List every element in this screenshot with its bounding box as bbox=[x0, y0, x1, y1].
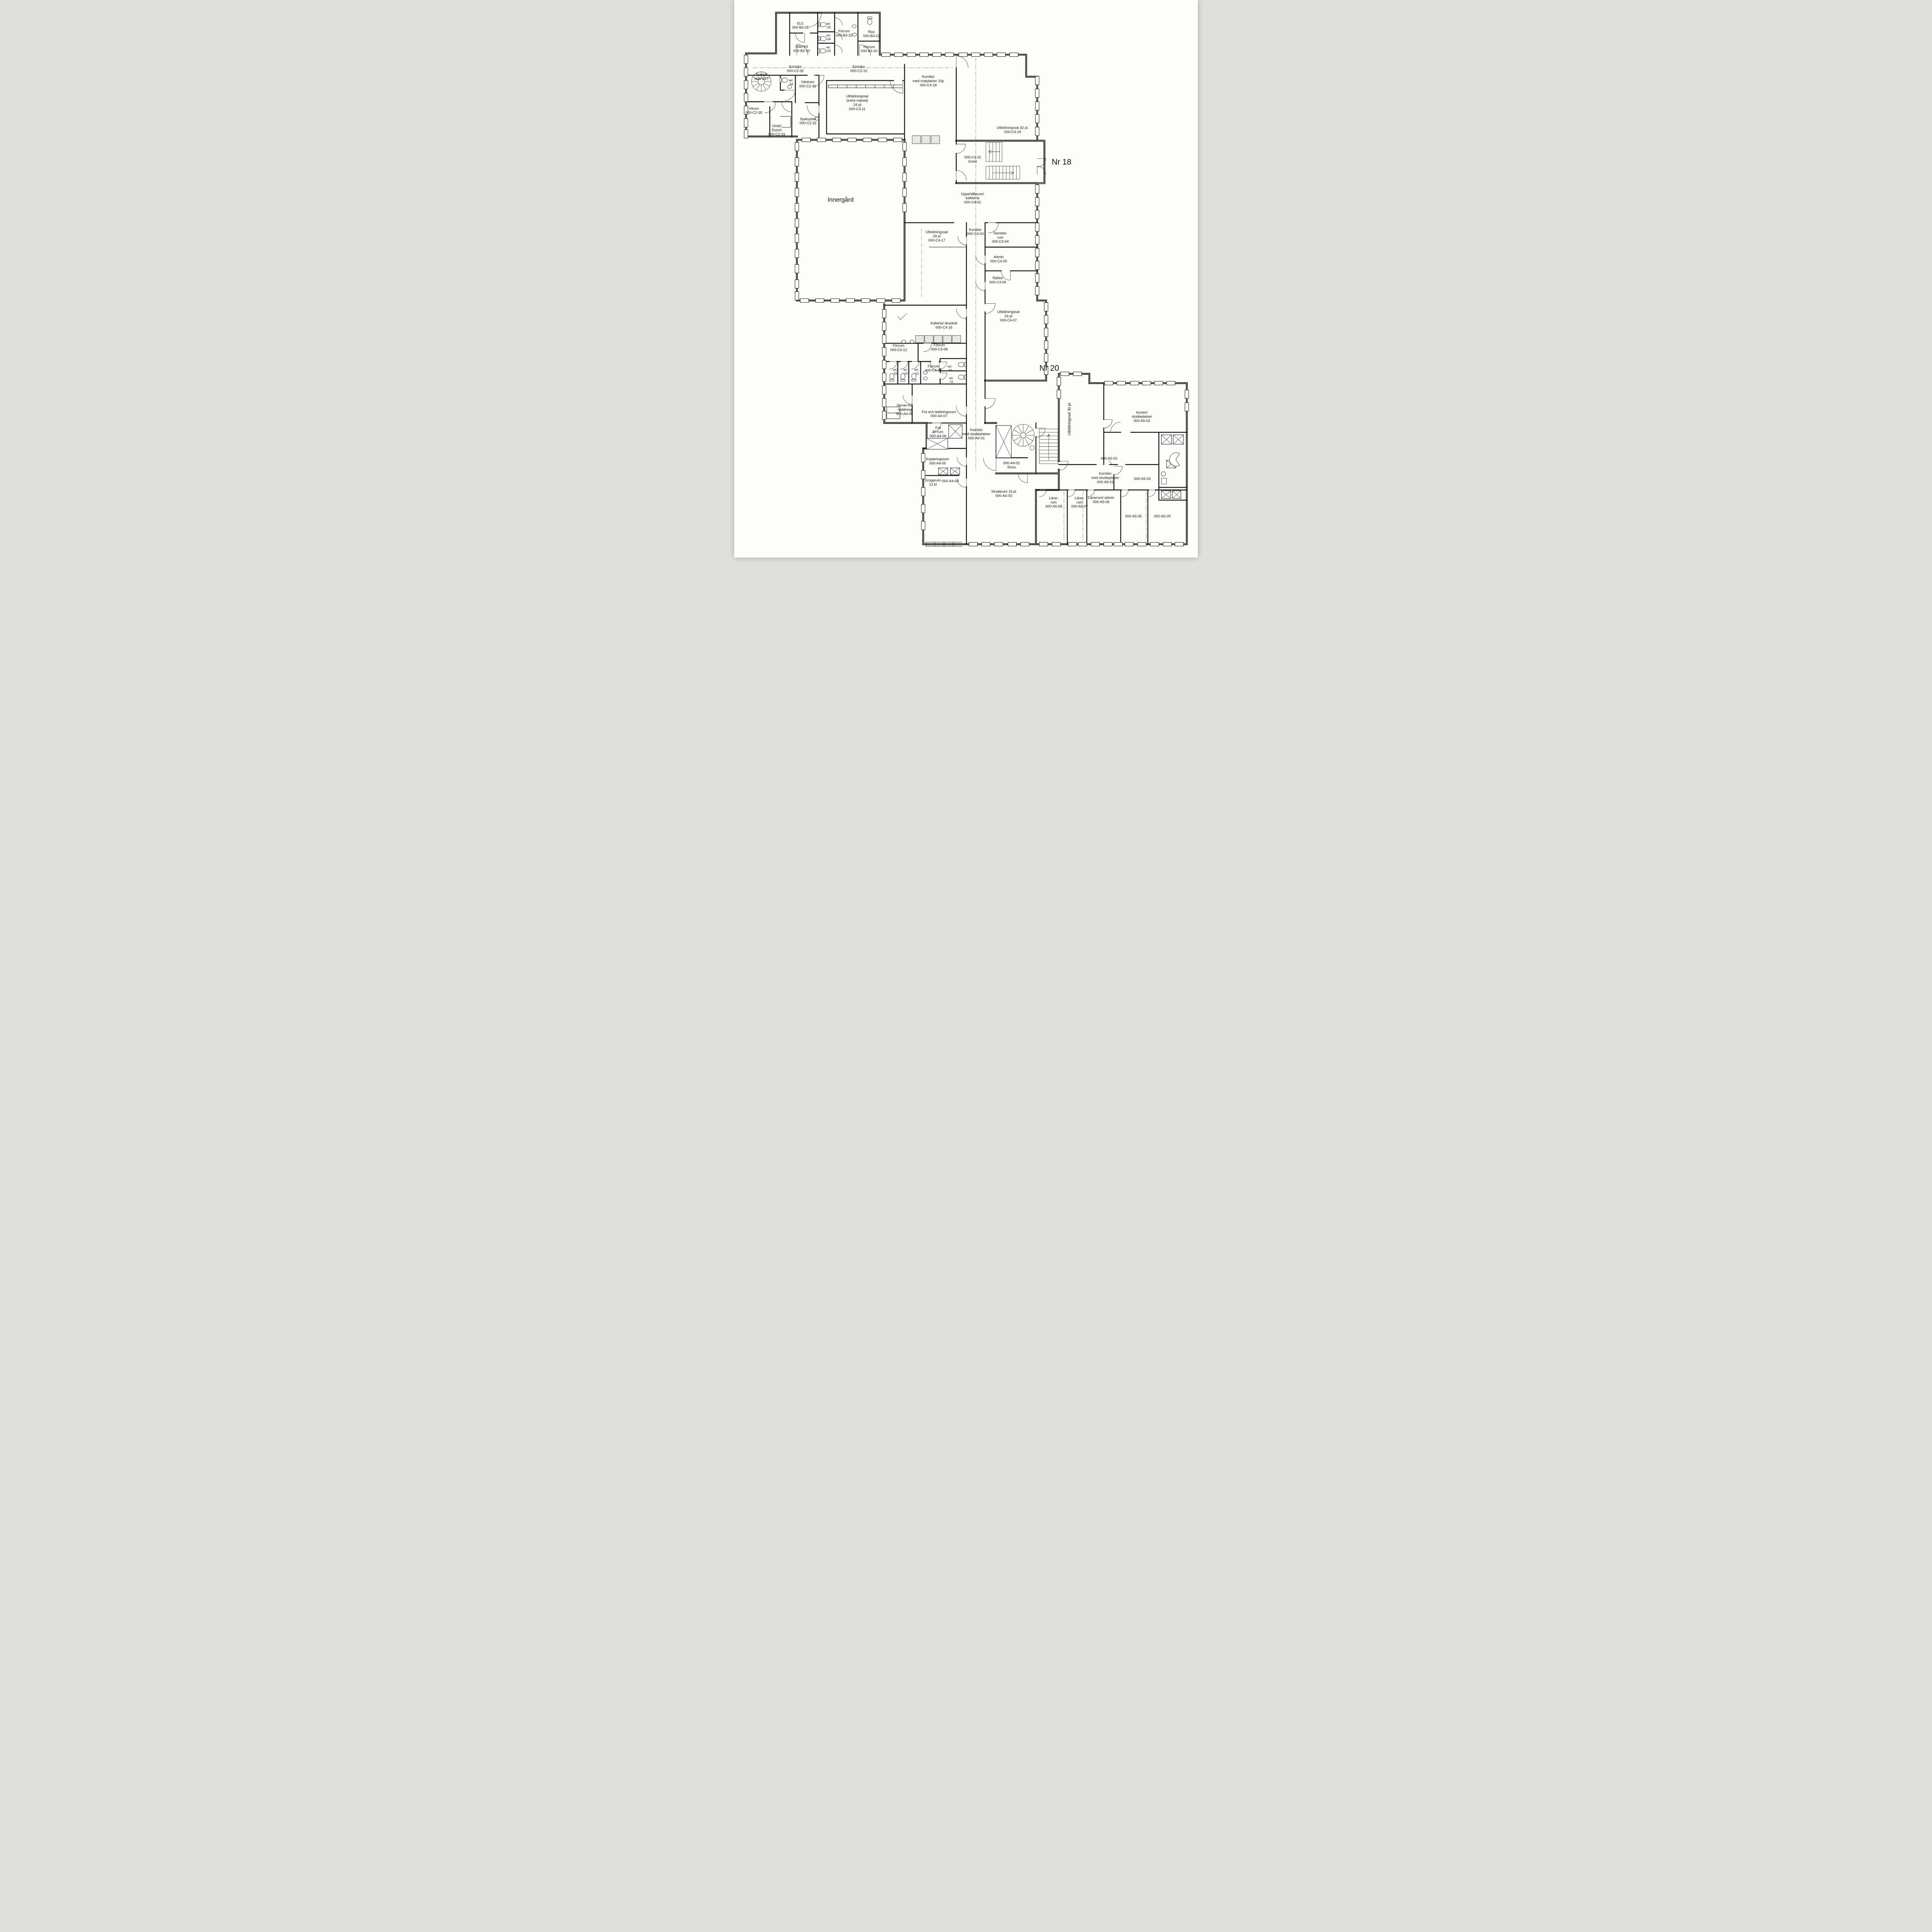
plumbing-fixtures bbox=[780, 17, 1180, 484]
window-marker bbox=[1125, 543, 1133, 546]
partition-walls bbox=[781, 85, 1112, 546]
window-marker bbox=[882, 322, 886, 331]
door-swing bbox=[782, 102, 792, 112]
sink-icon bbox=[901, 340, 906, 343]
room-label-sluss-a4-02-line-1: Sluss bbox=[1007, 465, 1016, 469]
room-label-rwc-b3-21-line-0: Rwc bbox=[868, 30, 875, 34]
door-swing bbox=[976, 281, 985, 291]
room-label-forrum-c4-08-line-1: 000-C4-08 bbox=[931, 347, 948, 351]
room-label-server-frd-a4-08-line-0: Server-frd bbox=[896, 403, 912, 407]
window-marker bbox=[882, 373, 886, 381]
toilet-icon bbox=[818, 36, 826, 41]
room-label-wc-24-line-0: wc bbox=[826, 33, 830, 37]
room-label-wc-23-line-0: wc bbox=[826, 45, 830, 49]
room-label-rektor-c4-06-line-1: 000-C4-06 bbox=[990, 280, 1006, 284]
window-marker bbox=[945, 53, 954, 57]
window-marker bbox=[903, 188, 906, 197]
toilet-icon bbox=[958, 375, 966, 379]
window-marker bbox=[1078, 543, 1087, 546]
toilet-icon bbox=[867, 17, 872, 25]
window-marker bbox=[795, 219, 799, 227]
room-label-korridor-c4-18-line-1: med matplatser 10p bbox=[913, 79, 944, 83]
room-label-forrum-c4-12-line-0: Förrum bbox=[893, 344, 905, 348]
room-label-forrum-b3-20-line-1: 000-B3-20 bbox=[861, 49, 878, 53]
room-label-vantrum-c2-31-line-1: 000-C2-31 bbox=[799, 84, 816, 88]
door-swing bbox=[956, 144, 966, 153]
room-label-kontor-a5-03-line-2: 000-A5-03 bbox=[1134, 419, 1150, 423]
room-label-utbildningssal-c4-07-line-2: 000-C4-07 bbox=[1000, 318, 1017, 322]
room-label-vilrum-c2-35-line-1: 000-C2-35 bbox=[745, 111, 762, 115]
window-marker bbox=[878, 138, 887, 142]
window-marker bbox=[882, 335, 886, 344]
spiral-stair-sluss-step bbox=[1026, 437, 1033, 441]
serving-counter bbox=[931, 136, 940, 144]
room-label-korridor-c3-10-line-1: 000-C3-10 bbox=[850, 69, 867, 73]
window-marker bbox=[795, 249, 799, 258]
room-label-wc-13-line-0: wc bbox=[914, 368, 918, 372]
room-label-lararrum-admin-a5-06-line-1: 000-A5-06 bbox=[1093, 500, 1109, 504]
spiral-stair-trappa-step bbox=[764, 83, 770, 86]
room-label-kontor-a5-03-line-1: studieplatser bbox=[1132, 415, 1152, 418]
window-marker bbox=[1163, 543, 1172, 546]
room-label-wc-23-line-1: -23 bbox=[826, 49, 830, 53]
toilet-icon bbox=[818, 49, 826, 53]
window-marker bbox=[1091, 543, 1100, 546]
exterior-wall-texture bbox=[797, 140, 905, 301]
room-label-trappa-nod-ut-line-1: Nöd UT? bbox=[754, 77, 769, 81]
room-label-utbildningssal-c4-19-line-1: 000-C4-19 bbox=[1004, 130, 1021, 134]
room-label-korridor-a4-01-line-0: Korridor bbox=[970, 428, 983, 432]
room-label-kontor-a5-03-line-0: Kontor/ bbox=[1136, 410, 1148, 414]
sink-icon bbox=[923, 377, 927, 380]
door-swing bbox=[807, 105, 819, 117]
room-label-elc-line-1: 000-B2-21 bbox=[792, 26, 809, 29]
window-marker bbox=[795, 234, 799, 242]
room-label-wc-11-line-1: -11 bbox=[949, 380, 954, 384]
toilet-icon bbox=[780, 78, 787, 82]
room-label-innergard-line-0: Innergård bbox=[828, 196, 854, 203]
door-swing bbox=[835, 45, 842, 53]
door-swing bbox=[957, 457, 966, 466]
door-swing bbox=[956, 56, 968, 68]
room-label-utbildningssal-c4-17-line-0: Utbildningssal bbox=[926, 230, 948, 234]
window-marker bbox=[1114, 543, 1122, 546]
room-label-utbildningssal-c4-19-line-0: Utbildningssal 32 pl. bbox=[997, 126, 1028, 130]
door-swing bbox=[976, 255, 985, 264]
room-label-forrum-c4-09-line-1: 000-C4-09 bbox=[925, 369, 942, 372]
room-label-serverskap-line-0: Serverskåp bbox=[888, 412, 900, 414]
floorplan-svg: ELC000-B2-21Städ-frd000-B2-20wc-25wc-24w… bbox=[734, 0, 1198, 558]
window-marker bbox=[1104, 543, 1112, 546]
door-swing bbox=[956, 170, 966, 180]
room-label-larar-rum-a5-07-line-2: 000-A5-07 bbox=[1071, 505, 1088, 509]
window-marker bbox=[795, 188, 799, 197]
window-marker bbox=[882, 411, 886, 420]
room-label-admin-c4-05-line-0: Admin bbox=[993, 255, 1003, 259]
room-label-sjuksyster-c2-32-line-0: Sjuksyster bbox=[800, 117, 816, 121]
door-swing bbox=[1039, 490, 1046, 497]
room-label-wc-14-line-0: wc bbox=[903, 368, 907, 372]
window-marker bbox=[1117, 381, 1125, 385]
window-marker bbox=[1035, 197, 1039, 206]
room-label-wc-25-line-0: wc bbox=[826, 22, 830, 26]
spiral-stair-sluss-step bbox=[1014, 430, 1021, 434]
serving-counter bbox=[922, 136, 930, 144]
spiral-stair-sluss-step bbox=[1018, 426, 1022, 433]
room-label-omkl-dusch-c2-33-line-0: Omkl/ bbox=[772, 124, 781, 128]
door-swing bbox=[1114, 466, 1122, 475]
room-label-grupprum-12pl-line-1: 12 pl bbox=[929, 483, 937, 486]
room-label-entre-c4-01-line-1: Entré bbox=[969, 160, 977, 163]
window-marker bbox=[895, 53, 903, 57]
door-swing bbox=[983, 458, 996, 471]
room-label-sjuksyster-c2-32-line-1: 000-C2-32 bbox=[800, 121, 817, 125]
window-marker bbox=[921, 471, 925, 479]
window-marker bbox=[1035, 89, 1039, 97]
spiral-stair-sluss-step bbox=[1026, 430, 1033, 434]
room-label-korridor-c4-03-line-1: 000-C4-03 bbox=[967, 232, 984, 236]
door-swing bbox=[940, 373, 947, 380]
window-marker bbox=[893, 138, 902, 142]
window-marker bbox=[831, 299, 839, 303]
room-label-larar-rum-a5-08-line-2: 000-A5-08 bbox=[1046, 505, 1062, 509]
room-label-utbildningssal-c3-11-line-2: 24 pl bbox=[854, 103, 861, 107]
room-label-omkl-dusch-c2-33-line-2: 000-C2-33 bbox=[768, 133, 785, 136]
room-label-grupprum-12pl-line-0: Grupprum bbox=[925, 478, 941, 482]
window-marker bbox=[903, 143, 906, 151]
door-swing bbox=[1059, 461, 1068, 470]
room-label-stad-frd-line-1: 000-B2-20 bbox=[793, 49, 810, 53]
window-marker bbox=[1052, 543, 1061, 546]
door-swing bbox=[1018, 473, 1027, 483]
room-label-omkl-dusch-c2-33-line-1: Dusch bbox=[772, 128, 782, 132]
window-marker bbox=[1044, 341, 1048, 349]
room-label-vantrum-c2-31-line-0: Väntrum bbox=[801, 80, 815, 84]
room-label-korridor-c2-30-line-1: 000-C2-30 bbox=[787, 69, 804, 73]
window-marker bbox=[744, 93, 748, 102]
toilet-icon bbox=[818, 22, 826, 27]
room-label-korridor-c3-10-line-0: Korridor bbox=[852, 65, 865, 69]
window-marker bbox=[1020, 543, 1029, 546]
room-label-a4-04-line-0: 000-A4-04 bbox=[942, 479, 959, 483]
toilet-icon bbox=[958, 362, 966, 367]
door-swing bbox=[1068, 490, 1075, 497]
room-label-frd-laddningsrum-a4-07-line-1: 000-A4-07 bbox=[930, 414, 947, 418]
door-swing bbox=[985, 303, 995, 313]
door-swing bbox=[923, 343, 932, 352]
window-marker bbox=[832, 138, 841, 142]
window-marker bbox=[882, 53, 890, 57]
window-marker bbox=[1035, 286, 1039, 295]
window-marker bbox=[903, 173, 906, 182]
window-marker bbox=[1073, 372, 1082, 376]
room-label-korridor-c4-03-line-0: Korridor bbox=[969, 228, 982, 231]
spiral-stair-trappa-step bbox=[757, 84, 760, 90]
room-label-kafetria-c4-16-line-1: 000-C4-16 bbox=[935, 325, 952, 329]
room-label-rwc-b3-21-line-1: 000-B3-21 bbox=[863, 34, 880, 38]
room-label-larar-rum-a5-08-line-1: rum bbox=[1051, 500, 1057, 504]
room-label-a5-05-line-0: 000-A5-05 bbox=[1125, 514, 1142, 518]
room-label-rektor-c4-06-line-0: Rektor bbox=[993, 276, 1003, 280]
door-swing bbox=[795, 33, 804, 43]
door-swings bbox=[765, 13, 1155, 497]
room-label-elc-line-0: ELC bbox=[797, 21, 804, 25]
room-labels: ELC000-B2-21Städ-frd000-B2-20wc-25wc-24w… bbox=[745, 21, 1170, 518]
window-marker bbox=[795, 143, 799, 151]
room-label-wc-10-line-0: wc bbox=[947, 364, 952, 368]
room-label-larar-rum-a5-07-line-0: Lärar- bbox=[1075, 496, 1085, 500]
spiral-stair-sluss-step bbox=[1024, 426, 1029, 433]
window-marker bbox=[1057, 390, 1061, 398]
window-marker bbox=[921, 521, 925, 530]
spiral-stair-sluss-step bbox=[1024, 437, 1029, 445]
door-swing bbox=[958, 236, 966, 245]
window-marker bbox=[1035, 127, 1039, 136]
room-label-frd-el-rum-a4-06-line-2: 000-A4-06 bbox=[930, 434, 946, 438]
window-marker bbox=[1035, 210, 1039, 219]
room-label-forrum-c4-09-line-0: Förrum bbox=[928, 364, 939, 368]
sink-icon bbox=[910, 340, 914, 343]
serving-counter bbox=[912, 136, 921, 144]
kitchen-counter bbox=[934, 335, 942, 343]
room-label-a5-04-line-0: 000-A5-04 bbox=[1134, 477, 1151, 481]
room-label-wc-11-line-0: wc bbox=[949, 376, 953, 380]
window-marker bbox=[882, 398, 886, 407]
room-label-korridor-c4-18-line-2: 000-C4-18 bbox=[920, 83, 937, 87]
window-marker bbox=[846, 299, 855, 303]
kitchen-counter bbox=[952, 335, 961, 343]
kitchen-counter bbox=[915, 335, 924, 343]
window-marker bbox=[882, 386, 886, 394]
room-label-utbildningssal-c4-17-line-2: 000-C4-17 bbox=[929, 238, 946, 242]
room-label-korridor-c4-18-line-0: Korridor bbox=[922, 75, 935, 79]
room-label-admin-c4-05-line-1: 000-C4-05 bbox=[990, 259, 1007, 263]
window-marker bbox=[795, 173, 799, 182]
window-marker bbox=[892, 299, 900, 303]
window-marker bbox=[1057, 377, 1061, 386]
room-label-wc-13-line-1: -13 bbox=[914, 371, 919, 375]
window-marker bbox=[921, 454, 925, 462]
room-label-korridor-c2-30-line-0: Korridor bbox=[789, 65, 802, 69]
door-swing bbox=[835, 18, 842, 26]
window-marker bbox=[1039, 543, 1048, 546]
room-label-larar-rum-a5-08-line-0: Lärar- bbox=[1049, 496, 1059, 500]
room-label-sluss-a4-02-line-0: 000-A4-02 bbox=[1003, 461, 1020, 465]
window-marker bbox=[1185, 403, 1189, 411]
door-swing bbox=[985, 398, 995, 408]
room-label-larar-rum-a5-07-line-1: rum bbox=[1077, 500, 1083, 504]
room-label-wc-15-line-0: wc bbox=[893, 368, 897, 372]
room-label-a5-02-line-0: 000-A5-02 bbox=[1101, 456, 1117, 460]
window-marker bbox=[1035, 114, 1039, 123]
window-marker bbox=[959, 53, 967, 57]
window-marker bbox=[932, 53, 941, 57]
window-marker bbox=[903, 158, 906, 166]
kitchen-counter bbox=[925, 335, 933, 343]
room-label-lararrum-admin-a5-06-line-0: Lärarrum/ admin bbox=[1088, 496, 1114, 500]
window-marker bbox=[984, 53, 993, 57]
room-label-korridor-a4-01-line-2: 000-A4-01 bbox=[968, 436, 985, 440]
room-label-wc-10-line-1: -10 bbox=[947, 368, 952, 372]
room-label-kopieringsrum-a4-05-line-1: 000-A4-05 bbox=[929, 461, 946, 465]
window-marker bbox=[1138, 543, 1146, 546]
window-marker bbox=[817, 138, 826, 142]
fixture-box bbox=[1162, 478, 1167, 484]
sink-icon bbox=[852, 33, 857, 36]
window-marker bbox=[1010, 53, 1018, 57]
door-swing bbox=[956, 309, 966, 319]
window-marker bbox=[1061, 372, 1069, 376]
room-label-nr-20-line-0: Nr 20 bbox=[1039, 364, 1059, 372]
window-marker bbox=[795, 204, 799, 212]
room-label-studierum-a4-03-line-1: 000-A4-03 bbox=[995, 494, 1012, 498]
door-swing bbox=[956, 406, 966, 416]
window-marker bbox=[795, 264, 799, 273]
room-label-wc-34-line-1: -34 bbox=[789, 82, 793, 86]
window-marker bbox=[903, 204, 906, 212]
window-marker bbox=[882, 347, 886, 356]
room-label-samtalsrum-c4-04-line-1: rum bbox=[997, 235, 1003, 239]
room-label-utbildningssal-c3-11-line-3: 000-C3-11 bbox=[849, 107, 866, 111]
room-label-server-frd-a4-08-line-1: -laddning bbox=[897, 408, 912, 412]
room-label-stad-frd-line-0: Städ-frd bbox=[795, 45, 808, 49]
stair-direction-arrow bbox=[1047, 434, 1050, 460]
room-label-uppehallsrum-c4-02-line-2: 000-C4-02 bbox=[964, 201, 981, 204]
room-label-uppehallsrum-c4-02-line-0: Uppehållsrum/ bbox=[961, 192, 984, 196]
door-swing bbox=[1104, 420, 1112, 428]
room-label-forrum-c4-08-line-0: Förrum bbox=[934, 343, 945, 347]
room-label-utbildningssal-30pl-line-0: Utbildningssal 30 pl. bbox=[1068, 402, 1072, 435]
window-marker bbox=[1155, 381, 1163, 385]
floorplan-page: ELC000-B2-21Städ-frd000-B2-20wc-25wc-24w… bbox=[734, 0, 1198, 558]
window-marker bbox=[971, 53, 980, 57]
window-marker bbox=[1035, 274, 1039, 282]
window-marker bbox=[816, 299, 824, 303]
sink-icon bbox=[852, 25, 856, 28]
sink-icon bbox=[1161, 472, 1165, 476]
spiral-stair-sluss-hub bbox=[1020, 433, 1026, 438]
window-marker bbox=[877, 299, 885, 303]
door-swing bbox=[890, 80, 903, 93]
door-swing bbox=[1122, 490, 1129, 497]
window-marker bbox=[795, 280, 799, 288]
room-label-korridor-a4-01-line-1: med studieplatser bbox=[963, 432, 991, 436]
room-label-utbildningssal-c4-07-line-0: Utbildningssal bbox=[997, 310, 1019, 314]
door-swing bbox=[1111, 422, 1121, 432]
window-marker bbox=[1068, 543, 1077, 546]
room-label-utbildningssal-c4-07-line-1: 24 pl bbox=[1005, 314, 1012, 318]
window-marker bbox=[1130, 381, 1139, 385]
spiral-stair-trappa-step bbox=[763, 84, 766, 90]
room-label-frd-el-rum-a4-06-line-1: El-rum bbox=[933, 430, 943, 434]
window-marker bbox=[800, 299, 809, 303]
window-marker bbox=[882, 310, 886, 318]
room-label-wc-24-line-1: -24 bbox=[826, 37, 831, 41]
window-marker bbox=[744, 130, 748, 138]
window-marker bbox=[744, 55, 748, 64]
door-swing bbox=[785, 90, 795, 100]
window-marker bbox=[921, 487, 925, 496]
window-marker bbox=[1167, 381, 1175, 385]
window-marker bbox=[802, 138, 811, 142]
room-label-kopieringsrum-a4-05-line-0: Kopieringsrum bbox=[926, 457, 949, 461]
window-marker bbox=[861, 299, 870, 303]
room-label-kafetria-c4-16-line-0: Kafetria/ lärarkök bbox=[930, 321, 957, 325]
room-label-frd-laddningsrum-a4-07-line-0: Frd och laddningsrum bbox=[922, 410, 956, 414]
room-label-korridor-a5-01-line-1: med studieplatser bbox=[1091, 476, 1119, 480]
stair-direction-arrow bbox=[988, 150, 1000, 153]
window-marker bbox=[795, 292, 799, 300]
room-label-wc-15-line-1: -15 bbox=[893, 371, 897, 375]
window-marker bbox=[1035, 76, 1039, 85]
window-marker bbox=[1008, 543, 1017, 546]
window-marker bbox=[1035, 102, 1039, 110]
window-marker bbox=[1035, 261, 1039, 270]
room-label-forrum-b3-22-line-0: Förrum bbox=[838, 29, 850, 33]
window-marker bbox=[994, 543, 1003, 546]
window-marker bbox=[1185, 390, 1189, 398]
window-marker bbox=[863, 138, 871, 142]
window-marker bbox=[921, 504, 925, 513]
window-marker bbox=[1044, 354, 1048, 362]
room-label-samtalsrum-c4-04-line-0: Samtals- bbox=[993, 231, 1007, 235]
window-marker bbox=[1044, 328, 1048, 337]
window-marker bbox=[1044, 303, 1048, 311]
spiral-stair-post bbox=[1030, 446, 1034, 450]
window-marker bbox=[997, 53, 1005, 57]
room-label-forrum-b3-20-line-0: Förrum bbox=[864, 45, 875, 49]
room-label-studierum-a4-03-line-0: Studierum 16 pl bbox=[991, 490, 1016, 493]
window-marker bbox=[969, 543, 978, 546]
window-marker bbox=[1035, 185, 1039, 193]
window-marker bbox=[1035, 236, 1039, 244]
window-marker bbox=[1044, 315, 1048, 324]
window-marker bbox=[848, 138, 856, 142]
room-label-forrum-b3-22-line-1: 000-B3-22 bbox=[836, 33, 852, 37]
room-label-korridor-a5-01-line-0: Korridor bbox=[1099, 472, 1112, 476]
room-label-a5-09-line-0: 000-A5-09 bbox=[1154, 514, 1170, 518]
window-marker bbox=[795, 158, 799, 166]
door-swing bbox=[1088, 490, 1095, 497]
window-marker bbox=[744, 80, 748, 89]
window-marker bbox=[1035, 248, 1039, 257]
room-label-uppehallsrum-c4-02-line-1: kafeteria bbox=[966, 196, 980, 200]
room-label-frd-el-rum-a4-06-line-0: Frd bbox=[935, 426, 941, 430]
room-label-samtalsrum-c4-04-line-2: 000-C4-04 bbox=[992, 240, 1009, 243]
spiral-stair-sluss-step bbox=[1014, 437, 1021, 441]
room-label-trappa-nod-ut-line-0: Trappa bbox=[756, 73, 767, 77]
room-label-nr-18-line-0: Nr 18 bbox=[1052, 158, 1071, 167]
window-marker bbox=[744, 68, 748, 77]
room-label-wc-25-line-1: -25 bbox=[826, 26, 831, 29]
kitchen-counter bbox=[943, 335, 952, 343]
spiral-stair-trappa-step bbox=[753, 83, 759, 86]
room-label-korridor-a5-01-line-2: 000-A5-01 bbox=[1097, 480, 1114, 484]
room-label-utbildningssal-c3-11-line-1: (extra matsal) bbox=[846, 99, 868, 102]
room-label-utbildningssal-c4-17-line-1: 24 pl bbox=[933, 234, 940, 238]
room-label-wc-34-line-0: wc bbox=[788, 78, 793, 82]
door-swing bbox=[1149, 490, 1156, 497]
room-label-wc-14-line-1: -14 bbox=[903, 371, 908, 375]
door-swing bbox=[903, 395, 912, 404]
room-label-forrum-c4-12-line-1: 000-C4-12 bbox=[890, 348, 907, 352]
door-swing bbox=[940, 362, 947, 369]
room-label-utbildningssal-c3-11-line-0: Utbildningssal bbox=[846, 94, 868, 98]
window-marker bbox=[1175, 543, 1184, 546]
spiral-stair-sluss-step bbox=[1018, 437, 1022, 445]
window-marker bbox=[1150, 543, 1159, 546]
window-marker bbox=[920, 53, 928, 57]
